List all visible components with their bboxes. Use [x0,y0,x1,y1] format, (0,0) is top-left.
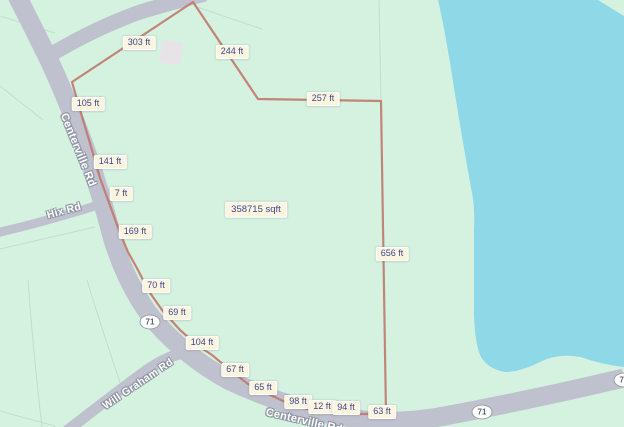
distance-label: 257 ft [307,92,340,106]
distance-label: 656 ft [376,247,409,261]
distance-label: 244 ft [216,45,249,59]
building-footprint [159,40,183,66]
route-71-shield-number: 71 [478,408,487,417]
area-label: 358715 sqft [225,202,287,218]
distance-label: 63 ft [368,405,396,419]
distance-label: 7 ft [110,187,133,201]
distance-label: 69 ft [163,306,191,320]
distance-label: 65 ft [249,381,277,395]
route-71-shield: 71 [472,405,493,420]
distance-label: 94 ft [332,401,360,415]
distance-label: 141 ft [94,155,127,169]
map-canvas[interactable]: Centerville Rd Hix Rd Will Graham Rd Cen… [0,0,624,427]
distance-label: 303 ft [123,36,156,50]
distance-label: 70 ft [142,279,170,293]
distance-label: 67 ft [221,363,249,377]
route-71-shield-number: 71 [146,318,155,327]
distance-label: 104 ft [186,336,219,350]
map-base-layer [0,0,624,427]
route-71-shield-number: 71 [620,376,624,385]
route-71-shield: 71 [140,315,161,330]
distance-label: 169 ft [119,225,152,239]
distance-label: 105 ft [72,97,105,111]
